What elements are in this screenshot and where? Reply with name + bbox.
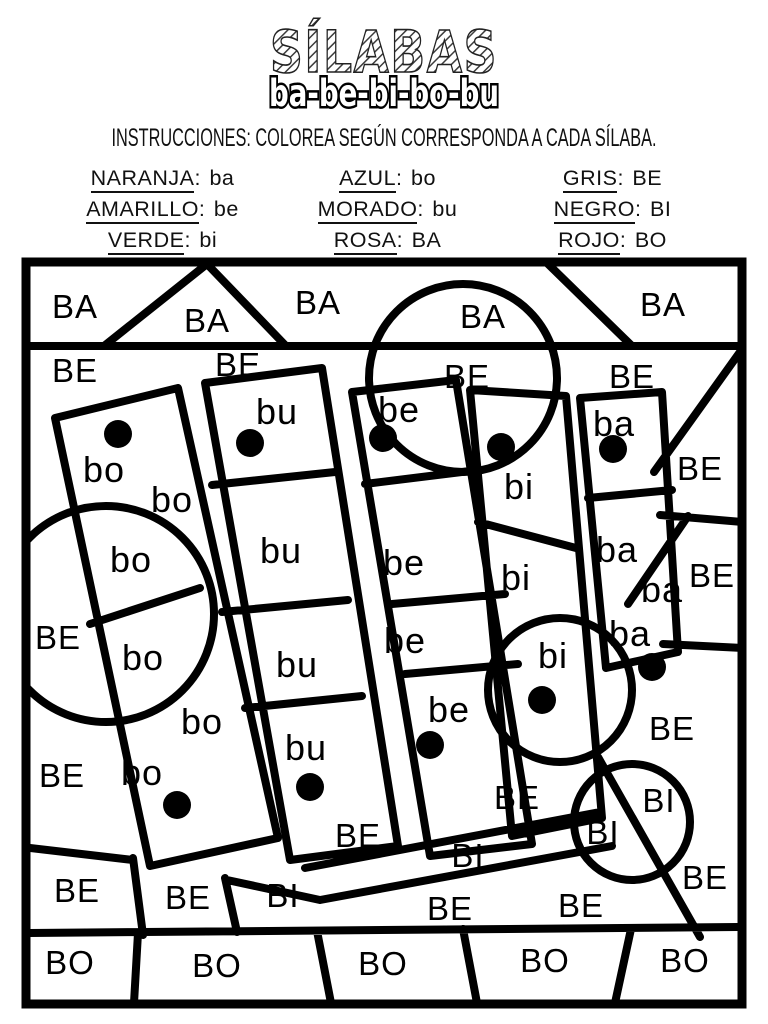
region-label-BE: BE bbox=[215, 346, 261, 383]
region-label-BE: BE bbox=[689, 557, 735, 594]
region-label-bi: bi bbox=[538, 635, 568, 676]
key-syllable: BI bbox=[650, 197, 671, 221]
region-label-BE: BE bbox=[52, 352, 98, 389]
key-syllable: bo bbox=[411, 166, 436, 190]
region-label-BE: BE bbox=[609, 358, 655, 395]
region-label-BE: BE bbox=[54, 872, 100, 909]
region-label-BE: BE bbox=[677, 450, 723, 487]
region-label-be: be bbox=[384, 620, 426, 661]
key-color-name: NEGRO bbox=[554, 197, 635, 224]
region-label-BE: BE bbox=[494, 779, 540, 816]
region-label-BO: BO bbox=[192, 947, 242, 984]
key-syllable: bu bbox=[432, 197, 457, 221]
marker-dot bbox=[296, 773, 324, 801]
region-label-BE: BE bbox=[649, 710, 695, 747]
key-entry-amarillo: AMARILLO: be bbox=[50, 197, 275, 221]
region-label-bu: bu bbox=[276, 644, 318, 685]
region-label-BE: BE bbox=[335, 817, 381, 854]
marker-dot bbox=[487, 433, 515, 461]
region-label-ba: ba bbox=[641, 569, 683, 610]
region-label-BE: BE bbox=[427, 890, 473, 927]
key-entry-naranja: NARANJA: ba bbox=[50, 166, 275, 190]
region-label-BO: BO bbox=[45, 944, 95, 981]
key-entry-rosa: ROSA: BA bbox=[285, 228, 490, 252]
region-label-bo: bo bbox=[122, 637, 164, 678]
key-entry-morado: MORADO: bu bbox=[285, 197, 490, 221]
region-label-BO: BO bbox=[660, 942, 710, 979]
key-syllable: be bbox=[214, 197, 239, 221]
marker-dot bbox=[528, 686, 556, 714]
color-key: NARANJA: ba AMARILLO: be VERDE: bi AZUL:… bbox=[0, 166, 768, 262]
region-label-BI: BI bbox=[586, 814, 619, 851]
page-subtitle: ba-be-bi-bo-bu bbox=[269, 72, 499, 115]
key-entry-verde: VERDE: bi bbox=[50, 228, 275, 252]
region-label-bo: bo bbox=[151, 479, 193, 520]
marker-dot bbox=[163, 791, 191, 819]
key-syllable: BA bbox=[412, 228, 442, 252]
worksheet-page: SÍLABAS ba-be-bi-bo-bu INSTRUCCIONES: CO… bbox=[0, 0, 768, 1024]
region-label-BE: BE bbox=[165, 879, 211, 916]
region-label-BA: BA bbox=[460, 298, 506, 335]
region-label-bo: bo bbox=[181, 701, 223, 742]
region-label-BE: BE bbox=[558, 887, 604, 924]
key-color-name: AZUL bbox=[339, 166, 396, 193]
marker-dot bbox=[638, 653, 666, 681]
region-label-BA: BA bbox=[184, 302, 230, 339]
region-label-BI: BI bbox=[266, 877, 299, 914]
puzzle-circles bbox=[0, 284, 690, 880]
key-color-name: ROSA bbox=[334, 228, 397, 255]
region-label-bo: bo bbox=[110, 539, 152, 580]
region-label-be: be bbox=[428, 689, 470, 730]
key-entry-gris: GRIS: BE bbox=[515, 166, 710, 190]
region-label-BI: BI bbox=[451, 837, 484, 874]
region-label-bi: bi bbox=[501, 557, 531, 598]
key-syllable: BO bbox=[635, 228, 667, 252]
region-label-BO: BO bbox=[520, 942, 570, 979]
region-label-bu: bu bbox=[256, 391, 298, 432]
key-syllable: BE bbox=[632, 166, 662, 190]
key-syllable: bi bbox=[199, 228, 217, 252]
marker-dot bbox=[416, 731, 444, 759]
region-label-bo: bo bbox=[121, 752, 163, 793]
region-label-be: be bbox=[383, 542, 425, 583]
key-color-name: MORADO bbox=[318, 197, 418, 224]
region-label-bu: bu bbox=[285, 727, 327, 768]
region-label-be: be bbox=[378, 389, 420, 430]
region-label-ba: ba bbox=[596, 529, 638, 570]
marker-dot bbox=[104, 420, 132, 448]
instructions-text: INSTRUCCIONES: COLOREA SEGÚN CORRESPONDA… bbox=[112, 123, 657, 152]
region-label-BI: BI bbox=[642, 782, 675, 819]
region-label-BA: BA bbox=[640, 286, 686, 323]
marker-dot bbox=[599, 435, 627, 463]
key-color-name: NARANJA bbox=[91, 166, 195, 193]
region-label-BE: BE bbox=[35, 619, 81, 656]
key-color-name: ROJO bbox=[558, 228, 620, 255]
key-entry-rojo: ROJO: BO bbox=[515, 228, 710, 252]
marker-dot bbox=[369, 424, 397, 452]
region-label-bu: bu bbox=[260, 530, 302, 571]
key-column-1: NARANJA: ba AMARILLO: be VERDE: bi bbox=[50, 166, 275, 259]
region-label-bi: bi bbox=[504, 466, 534, 507]
key-column-2: AZUL: bo MORADO: bu ROSA: BA bbox=[285, 166, 490, 259]
region-label-BE: BE bbox=[444, 358, 490, 395]
region-label-BE: BE bbox=[682, 859, 728, 896]
key-syllable: ba bbox=[209, 166, 234, 190]
region-label-ba: ba bbox=[609, 613, 651, 654]
key-color-name: VERDE bbox=[108, 228, 185, 255]
key-column-3: GRIS: BE NEGRO: BI ROJO: BO bbox=[515, 166, 710, 259]
marker-dot bbox=[236, 429, 264, 457]
region-label-bo: bo bbox=[83, 449, 125, 490]
key-entry-azul: AZUL: bo bbox=[285, 166, 490, 190]
key-entry-negro: NEGRO: BI bbox=[515, 197, 710, 221]
left-circle-shape bbox=[0, 506, 214, 722]
region-label-BA: BA bbox=[52, 288, 98, 325]
worksheet-canvas: SÍLABAS ba-be-bi-bo-bu INSTRUCCIONES: CO… bbox=[0, 0, 768, 1024]
key-color-name: GRIS bbox=[563, 166, 618, 193]
region-label-BA: BA bbox=[295, 284, 341, 321]
region-label-BO: BO bbox=[358, 945, 408, 982]
key-color-name: AMARILLO bbox=[86, 197, 199, 224]
region-label-BE: BE bbox=[39, 757, 85, 794]
